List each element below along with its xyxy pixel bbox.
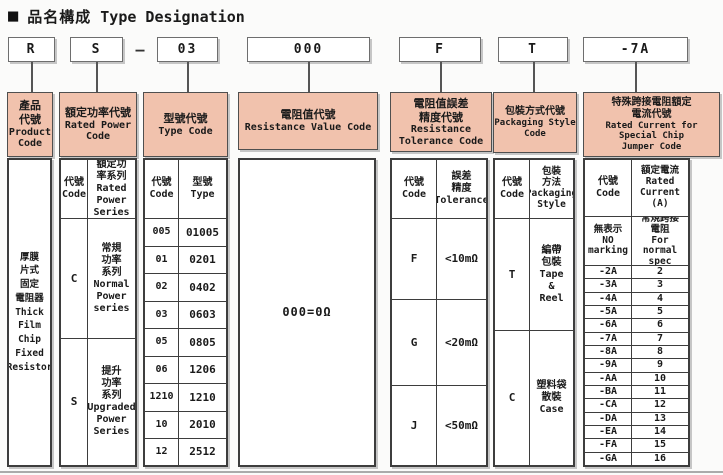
type-designation-page: ■ 品名構成 Type Designation R S — 03 000 F T… — [0, 0, 723, 475]
subheader-code-cell: 代號 Code — [585, 160, 632, 216]
table-row: -7A 7 — [585, 333, 688, 346]
code-cell: G — [392, 300, 437, 385]
value-cell: 0402 — [179, 274, 226, 301]
code-cell: -FA — [585, 439, 632, 451]
table-jumper: 代號 Code 額定電流 Rated Current (A) 無表示 NO ma… — [583, 158, 690, 467]
section-bullet-icon: ■ — [8, 8, 18, 25]
code-cell: T — [495, 219, 530, 330]
value-cell: 11 — [632, 386, 688, 398]
subheader-code-cell: 代號 Code — [145, 160, 179, 218]
value-cell: 常規跨接 電阻 For normal spec — [632, 217, 688, 265]
table-resistance-value: 000=0Ω — [238, 158, 376, 467]
code-box-jumper: -7A — [583, 37, 688, 62]
header-rated-power-code: 額定功率代號 Rated Power Code — [59, 92, 137, 157]
connector-line — [440, 62, 442, 92]
table-row: 005 01005 — [145, 219, 226, 247]
code-box-packaging: T — [498, 37, 568, 62]
code-cell: 01 — [145, 247, 179, 274]
page-title: ■ 品名構成 Type Designation — [8, 6, 245, 27]
code-box-type: 03 — [157, 37, 218, 62]
header-product-cjk: 產品 代號 — [19, 99, 41, 127]
table-type: 代號 Code 型號 Type 005 01005 01 0201 02 040… — [143, 158, 228, 467]
code-box-power: S — [70, 37, 123, 62]
code-cell: -4A — [585, 293, 632, 305]
code-cell: -3A — [585, 279, 632, 291]
subheader-value-cell: 誤差 精度 Tolerance — [437, 160, 486, 218]
table-tolerance: 代號 Code 誤差 精度 Tolerance F <10mΩ G <20mΩ … — [390, 158, 488, 467]
subheader-code-cell: 代號 Code — [61, 160, 88, 218]
header-tolerance-cjk: 電阻值誤差 精度代號 — [414, 97, 469, 125]
value-cell: 8 — [632, 346, 688, 358]
code-cell: -AA — [585, 373, 632, 385]
table-row: 03 0603 — [145, 302, 226, 330]
code-cell: F — [392, 219, 437, 299]
table-row: -3A 3 — [585, 279, 688, 292]
table-subheader-row: 代號 Code 包裝 方法 Packaging Style — [495, 160, 573, 219]
header-packaging-cjk: 包裝方式代號 — [505, 106, 565, 118]
code-cell: C — [61, 219, 88, 338]
table-row: -2A 2 — [585, 266, 688, 279]
header-type-en: Type Code — [158, 126, 212, 138]
table-row: 06 1206 — [145, 357, 226, 385]
value-cell: 0603 — [179, 302, 226, 329]
table-row: F <10mΩ — [392, 219, 486, 300]
code-cell: -2A — [585, 266, 632, 278]
value-cell: 1206 — [179, 357, 226, 384]
code-cell: 03 — [145, 302, 179, 329]
table-rated-power: 代號 Code 額定功 率系列 Rated Power Series C 常規 … — [59, 158, 137, 467]
header-resistance-tolerance-code: 電阻值誤差 精度代號 Resistance Tolerance Code — [390, 92, 492, 152]
value-cell: 3 — [632, 279, 688, 291]
value-cell: 2010 — [179, 412, 226, 439]
code-cell: -7A — [585, 333, 632, 345]
code-box-resistance: 000 — [247, 37, 370, 62]
value-cell: 1210 — [179, 384, 226, 411]
resistance-body-cell: 000=0Ω — [240, 160, 374, 465]
table-row: -FA 15 — [585, 439, 688, 452]
header-jumper-cjk: 特殊跨接電阻額定 電流代號 — [612, 97, 692, 121]
subheader-value-cell: 額定功 率系列 Rated Power Series — [88, 160, 135, 218]
value-cell: 提升 功率 系列 Upgraded Power Series — [88, 339, 135, 465]
value-cell: <10mΩ — [437, 219, 486, 299]
header-power-en: Rated Power Code — [65, 120, 131, 143]
table-subheader-row: 代號 Code 額定功 率系列 Rated Power Series — [61, 160, 135, 219]
header-jumper-en: Rated Current for Special Chip Jumper Co… — [605, 121, 697, 152]
code-cell: -5A — [585, 306, 632, 318]
header-packaging-style-code: 包裝方式代號 Packaging Style Code — [493, 92, 577, 153]
header-product-code: 產品 代號 Product Code — [7, 92, 53, 157]
subheader-value-cell: 包裝 方法 Packaging Style — [530, 160, 573, 218]
code-cell: -9A — [585, 359, 632, 371]
table-packaging: 代號 Code 包裝 方法 Packaging Style T 編帶 包裝 Ta… — [493, 158, 575, 467]
table-row: 1210 1210 — [145, 384, 226, 412]
table-subheader-row: 代號 Code 型號 Type — [145, 160, 226, 219]
table-row: 02 0402 — [145, 274, 226, 302]
table-row: -AA 10 — [585, 373, 688, 386]
connector-line — [308, 62, 310, 92]
code-cell: 1210 — [145, 384, 179, 411]
value-cell: 13 — [632, 413, 688, 425]
value-cell: 12 — [632, 399, 688, 411]
code-cell: 02 — [145, 274, 179, 301]
product-body-cell: 厚膜 片式 固定 電阻器 Thick Film Chip Fixed Resis… — [9, 160, 50, 465]
page-title-cjk: 品名構成 — [27, 6, 91, 27]
code-cell: -6A — [585, 319, 632, 331]
code-cell: 10 — [145, 412, 179, 439]
table-row: -8A 8 — [585, 346, 688, 359]
connector-line — [187, 62, 189, 92]
value-cell: 塑料袋 散裝 Case — [530, 331, 573, 465]
value-cell: 01005 — [179, 219, 226, 246]
header-resistance-en: Resistance Value Code — [245, 122, 371, 134]
page-title-en: Type Designation — [100, 8, 245, 26]
table-row: -5A 5 — [585, 306, 688, 319]
value-cell: 9 — [632, 359, 688, 371]
subheader-code-cell: 代號 Code — [495, 160, 530, 218]
header-resistance-cjk: 電阻值代號 — [281, 108, 336, 122]
code-cell: 005 — [145, 219, 179, 246]
value-cell: 6 — [632, 319, 688, 331]
code-cell: -CA — [585, 399, 632, 411]
table-row: T 編帶 包裝 Tape & Reel — [495, 219, 573, 331]
value-cell: 2512 — [179, 439, 226, 465]
code-separator: — — [127, 37, 153, 62]
table-row: C 塑料袋 散裝 Case — [495, 331, 573, 465]
code-box-product: R — [8, 37, 55, 62]
table-row: J <50mΩ — [392, 386, 486, 465]
connector-line — [533, 62, 535, 92]
code-cell: -EA — [585, 426, 632, 438]
connector-line — [96, 62, 98, 92]
table-row: -6A 6 — [585, 319, 688, 332]
code-cell: 12 — [145, 439, 179, 465]
table-row: S 提升 功率 系列 Upgraded Power Series — [61, 339, 135, 465]
code-cell: -BA — [585, 386, 632, 398]
code-cell: 05 — [145, 329, 179, 356]
table-row: -GA 16 — [585, 453, 688, 465]
table-row: -9A 9 — [585, 359, 688, 372]
value-cell: 常規 功率 系列 Normal Power series — [88, 219, 135, 338]
value-cell: 4 — [632, 293, 688, 305]
code-cell: 無表示 NO marking — [585, 217, 632, 265]
header-jumper-code: 特殊跨接電阻額定 電流代號 Rated Current for Special … — [583, 92, 720, 157]
table-row: -BA 11 — [585, 386, 688, 399]
value-cell: 16 — [632, 453, 688, 465]
value-cell: 0201 — [179, 247, 226, 274]
code-cell: J — [392, 386, 437, 465]
value-cell: <20mΩ — [437, 300, 486, 385]
table-subheader-row: 代號 Code 誤差 精度 Tolerance — [392, 160, 486, 219]
table-row: -CA 12 — [585, 399, 688, 412]
table-subheader-row: 代號 Code 額定電流 Rated Current (A) — [585, 160, 688, 217]
subheader-value-cell: 額定電流 Rated Current (A) — [632, 160, 688, 216]
value-cell: 7 — [632, 333, 688, 345]
table-row: C 常規 功率 系列 Normal Power series — [61, 219, 135, 339]
value-cell: 14 — [632, 426, 688, 438]
code-cell: -DA — [585, 413, 632, 425]
value-cell: 0805 — [179, 329, 226, 356]
table-row: -4A 4 — [585, 293, 688, 306]
connector-line — [635, 62, 637, 92]
subheader-code-cell: 代號 Code — [392, 160, 437, 218]
value-cell: 10 — [632, 373, 688, 385]
table-row: 05 0805 — [145, 329, 226, 357]
table-row: -EA 14 — [585, 426, 688, 439]
table-row: 10 2010 — [145, 412, 226, 440]
code-cell: 06 — [145, 357, 179, 384]
value-cell: 編帶 包裝 Tape & Reel — [530, 219, 573, 330]
header-power-cjk: 額定功率代號 — [65, 106, 131, 120]
table-row-no-marking: 無表示 NO marking 常規跨接 電阻 For normal spec — [585, 217, 688, 266]
table-row: 01 0201 — [145, 247, 226, 275]
header-packaging-en: Packaging Style Code — [494, 118, 575, 139]
code-cell: C — [495, 331, 530, 465]
header-tolerance-en: Resistance Tolerance Code — [399, 124, 483, 147]
value-cell: 15 — [632, 439, 688, 451]
header-type-code: 型號代號 Type Code — [143, 92, 228, 157]
page-bottom-rule — [0, 471, 723, 473]
connector-line — [31, 62, 33, 92]
code-cell: -8A — [585, 346, 632, 358]
header-product-en: Product Code — [9, 127, 51, 150]
table-row: -DA 13 — [585, 413, 688, 426]
header-resistance-value-code: 電阻值代號 Resistance Value Code — [238, 92, 378, 150]
subheader-value-cell: 型號 Type — [179, 160, 226, 218]
table-row: G <20mΩ — [392, 300, 486, 386]
table-product: 厚膜 片式 固定 電阻器 Thick Film Chip Fixed Resis… — [7, 158, 52, 467]
code-box-tolerance: F — [399, 37, 481, 62]
value-cell: 5 — [632, 306, 688, 318]
code-cell: -GA — [585, 453, 632, 465]
code-cell: S — [61, 339, 88, 465]
value-cell: 2 — [632, 266, 688, 278]
table-row: 12 2512 — [145, 439, 226, 465]
header-type-cjk: 型號代號 — [164, 112, 208, 126]
value-cell: <50mΩ — [437, 386, 486, 465]
